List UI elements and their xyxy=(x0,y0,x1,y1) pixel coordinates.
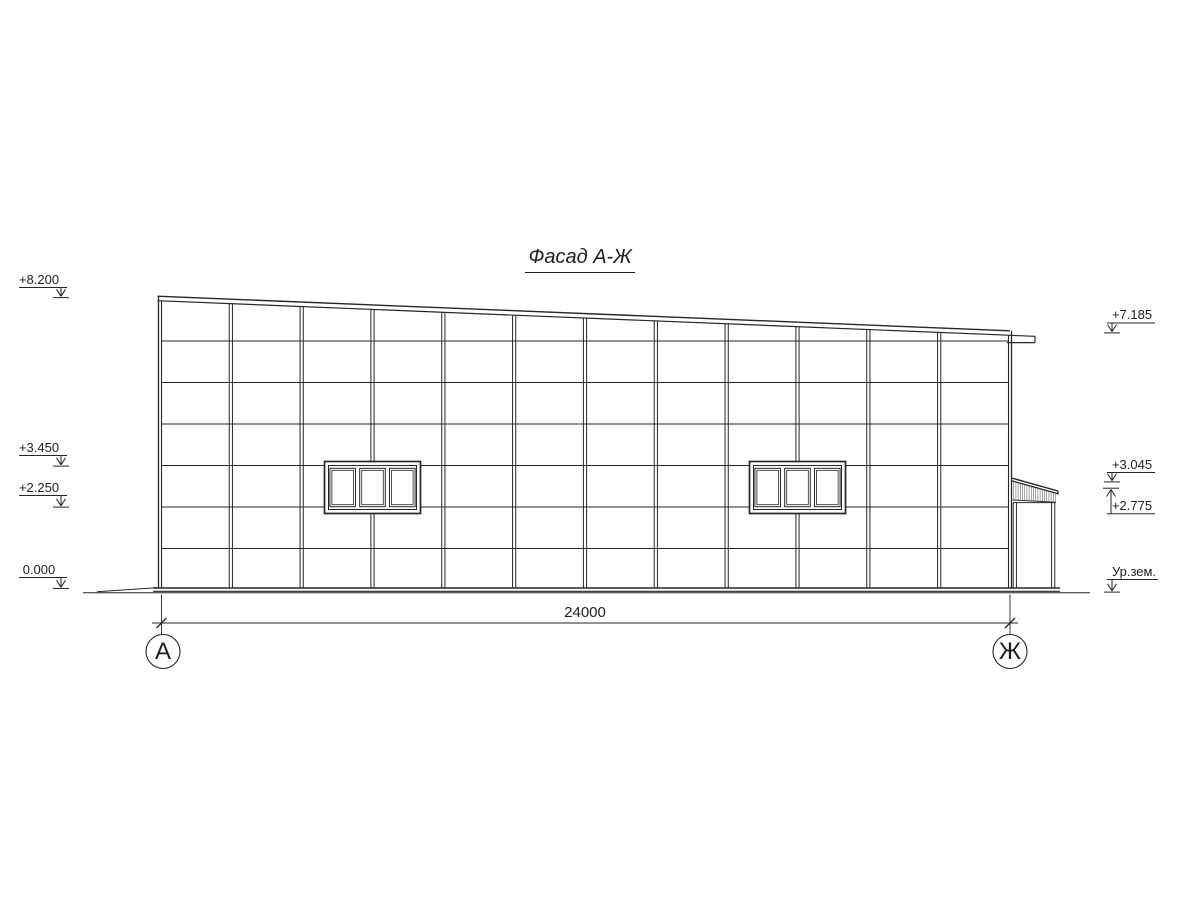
elevation-label-left-2250: +2.250 xyxy=(10,481,68,495)
axis-bubble-label-a: А xyxy=(143,640,183,664)
elevation-label-right-3045: +3.045 xyxy=(1106,458,1158,472)
plinth-and-ground-lines xyxy=(83,588,1090,593)
elevation-mark-arrows xyxy=(19,288,1158,593)
elevation-label-left-0000: 0.000 xyxy=(10,563,68,577)
roof-parapet-lines xyxy=(158,296,1036,342)
wall-edge-lines xyxy=(159,296,1012,588)
panel-joint-lines xyxy=(162,341,1009,549)
elevation-label-ground-level: Ур.зем. xyxy=(1106,565,1162,579)
elevation-label-left-3450: +3.450 xyxy=(10,441,68,455)
elevation-label-right-7185: +7.185 xyxy=(1106,308,1158,322)
elevation-label-left-8200: +8.200 xyxy=(10,273,68,287)
window-blocks xyxy=(325,462,846,514)
axis-bubble-label-zh: Ж xyxy=(990,640,1030,664)
curtain-wall-mullions xyxy=(229,304,941,588)
dimension-value-24000: 24000 xyxy=(535,605,635,620)
facade-elevation-drawing xyxy=(0,0,1200,900)
elevation-label-right-2775: +2.775 xyxy=(1106,499,1158,513)
drawing-title: Фасад А-Ж xyxy=(525,246,634,273)
drawing-canvas: Фасад А-Ж +8.200 +3.450 +2.250 0.000 +7.… xyxy=(0,0,1200,900)
entrance-annex xyxy=(1012,478,1059,588)
drawing-title-area: Фасад А-Ж xyxy=(480,246,680,273)
